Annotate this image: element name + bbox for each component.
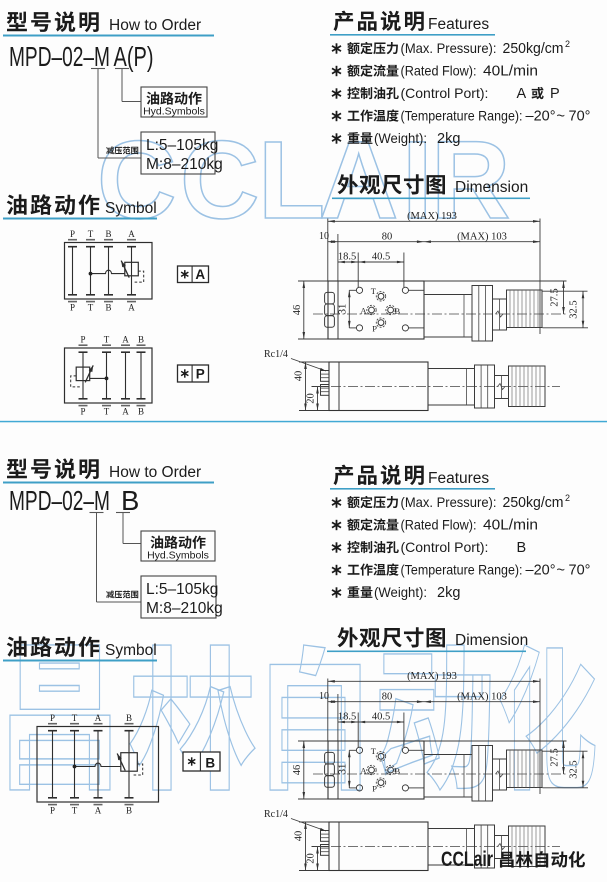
svg-text:Dimension: Dimension [455,632,528,649]
svg-text:Rc1/4: Rc1/4 [264,809,288,820]
svg-text:Features: Features [428,470,489,487]
svg-text:20: 20 [306,393,317,404]
svg-text:27.5: 27.5 [550,748,561,766]
svg-text:L:5–105kg: L:5–105kg [146,581,218,598]
svg-text:T: T [72,806,78,816]
svg-text:MPD–02–M: MPD–02–M [9,485,110,516]
svg-text:(MAX) 193: (MAX) 193 [407,211,457,222]
svg-text:T: T [371,746,377,756]
svg-text:M:8–210kg: M:8–210kg [146,600,223,617]
svg-text:20: 20 [306,853,317,864]
svg-text:P: P [50,713,55,723]
svg-text:250kg/cm: 250kg/cm [503,41,564,57]
svg-text:(MAX) 103: (MAX) 103 [457,692,507,703]
svg-text:P: P [50,806,55,816]
svg-text:A: A [122,407,129,417]
svg-text:Symbol: Symbol [105,642,157,659]
svg-text:2kg: 2kg [437,585,460,601]
svg-text:Dimension: Dimension [455,179,528,196]
svg-text:L: L [258,119,325,242]
svg-text:A: A [128,303,135,313]
svg-text:40L/min: 40L/min [483,518,538,534]
svg-text:P: P [372,784,377,794]
svg-text:40.5: 40.5 [372,252,390,263]
svg-text:B: B [126,713,132,723]
svg-text:A: A [95,713,102,723]
svg-text:18.5: 18.5 [338,252,356,263]
svg-text:~: ~ [557,109,565,125]
svg-text:32.5: 32.5 [569,300,580,318]
svg-text:(Weight):: (Weight): [374,584,427,600]
svg-text:2: 2 [565,39,570,49]
svg-text:How to Order: How to Order [109,464,201,481]
svg-text:P: P [196,367,205,382]
svg-text:27.5: 27.5 [550,288,561,306]
svg-text:P: P [70,229,75,239]
svg-text:B: B [205,756,215,771]
svg-text:T: T [104,407,110,417]
svg-text:MPD–02–M: MPD–02–M [9,41,110,72]
svg-text:A: A [128,229,135,239]
svg-text:B: B [138,407,144,417]
svg-text:T: T [88,229,94,239]
svg-text:32.5: 32.5 [569,760,580,778]
svg-text:70°: 70° [569,109,591,125]
svg-text:40: 40 [294,371,305,382]
svg-text:(Weight):: (Weight): [374,130,427,146]
svg-text:How to Order: How to Order [109,17,201,34]
svg-text:T: T [88,303,94,313]
svg-text:T: T [371,286,377,296]
svg-text:A: A [122,335,129,345]
svg-text:B: B [121,485,139,516]
svg-text:(Max. Pressure):: (Max. Pressure): [401,40,497,56]
svg-text:(MAX) 193: (MAX) 193 [407,671,457,682]
svg-text:80: 80 [382,232,393,243]
svg-text:2: 2 [565,493,570,503]
svg-text:CCLair: CCLair [441,847,493,871]
svg-text:Hyd.Symbols: Hyd.Symbols [147,550,209,562]
svg-text:B: B [517,540,527,556]
svg-text:P: P [80,335,85,345]
svg-text:Symbol: Symbol [105,200,157,217]
svg-text:250kg/cm: 250kg/cm [503,495,564,511]
svg-text:40L/min: 40L/min [483,64,538,80]
svg-text:–20°: –20° [526,563,556,579]
svg-text:B: B [126,806,132,816]
svg-text:(Max. Pressure):: (Max. Pressure): [401,494,497,510]
svg-text:(Temperature Range):: (Temperature Range): [401,562,523,578]
svg-text:10: 10 [319,691,329,702]
svg-text:70°: 70° [569,563,591,579]
svg-text:Rc1/4: Rc1/4 [264,349,288,360]
svg-text:18.5: 18.5 [338,712,356,723]
svg-text:~: ~ [557,563,565,579]
svg-text:80: 80 [382,692,393,703]
svg-text:A: A [195,267,205,282]
svg-text:P: P [80,407,85,417]
svg-text:40.5: 40.5 [372,712,390,723]
svg-text:A(P): A(P) [114,41,154,72]
svg-text:31: 31 [338,764,349,775]
svg-text:B: B [105,229,111,239]
svg-text:(Control Port):: (Control Port): [401,85,489,101]
svg-text:(Temperature Range):: (Temperature Range): [401,108,523,124]
svg-text:10: 10 [319,231,329,242]
svg-text:P: P [550,86,560,102]
svg-text:P: P [372,324,377,334]
svg-text:31: 31 [338,304,349,315]
svg-text:(MAX) 103: (MAX) 103 [457,232,507,243]
svg-text:(Rated Flow):: (Rated Flow): [401,517,477,533]
svg-text:P: P [70,303,75,313]
svg-text:T: T [72,713,78,723]
svg-text:B: B [105,303,111,313]
svg-text:(Rated Flow):: (Rated Flow): [401,63,477,79]
svg-text:40: 40 [294,831,305,842]
svg-text:Hyd.Symbols: Hyd.Symbols [143,106,205,118]
svg-text:46: 46 [292,765,303,776]
svg-text:–20°: –20° [526,109,556,125]
svg-text:B: B [138,335,144,345]
svg-text:L:5–105kg: L:5–105kg [146,137,218,154]
svg-text:46: 46 [292,305,303,316]
svg-text:A: A [95,806,102,816]
svg-text:M:8–210kg: M:8–210kg [146,156,223,173]
svg-text:A: A [517,86,527,102]
svg-text:T: T [104,335,110,345]
svg-text:Features: Features [428,16,489,33]
svg-text:2kg: 2kg [437,131,460,147]
svg-text:(Control Port):: (Control Port): [401,539,489,555]
